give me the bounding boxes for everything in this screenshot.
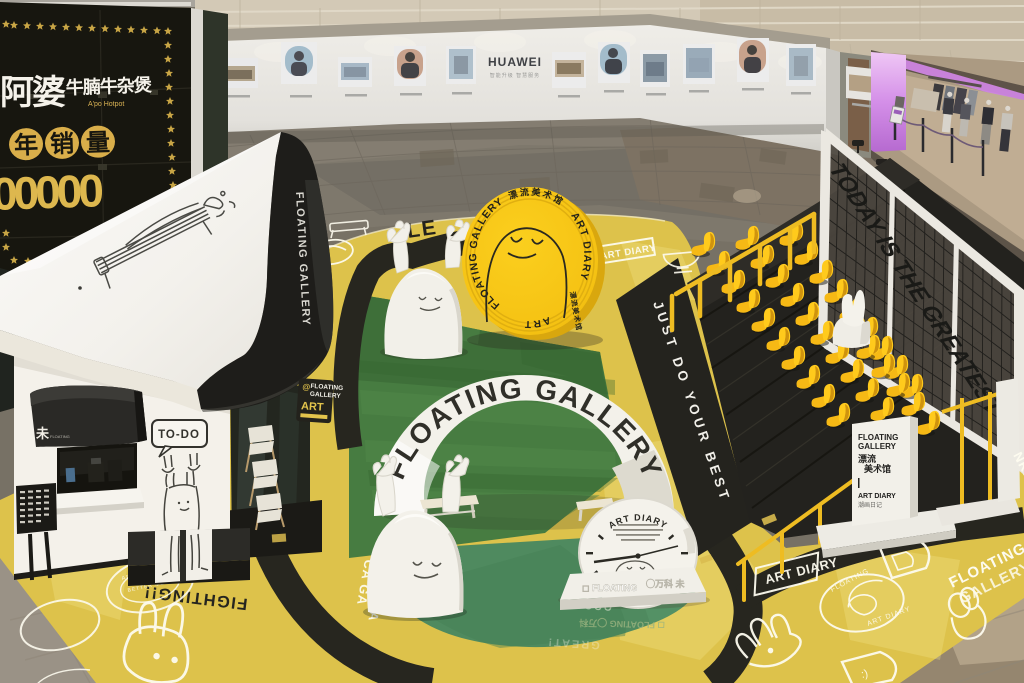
svg-text:GALLERY: GALLERY: [858, 442, 897, 451]
svg-text:牛腩牛杂煲: 牛腩牛杂煲: [65, 74, 153, 98]
svg-text:TO-DO: TO-DO: [158, 429, 200, 441]
svg-text:00000: 00000: [0, 164, 103, 220]
svg-text:ART: ART: [301, 400, 325, 414]
svg-text:FLOATING: FLOATING: [50, 434, 70, 439]
svg-text:HUAWEI: HUAWEI: [488, 55, 542, 69]
svg-text:潮画日记: 潮画日记: [858, 501, 882, 509]
svg-text:未: 未: [35, 426, 50, 441]
svg-text:漂流: 漂流: [858, 453, 876, 464]
svg-text:智能升级 智慧服务: 智能升级 智慧服务: [490, 72, 540, 79]
svg-text:量: 量: [86, 129, 111, 157]
svg-text:LE: LE: [405, 216, 439, 243]
svg-text:年: 年: [14, 131, 39, 160]
svg-text:FLOATING: FLOATING: [858, 433, 898, 442]
svg-text:阿婆: 阿婆: [0, 74, 66, 112]
svg-text:◻ FLOATING: ◻ FLOATING: [582, 583, 637, 593]
svg-text:A'po Hotpot: A'po Hotpot: [88, 101, 124, 108]
svg-text:美术馆: 美术馆: [864, 463, 891, 474]
svg-text:◯万科 未: ◯万科 未: [646, 578, 686, 589]
svg-text:ART DIARY: ART DIARY: [858, 493, 896, 500]
svg-text:销: 销: [50, 131, 75, 159]
